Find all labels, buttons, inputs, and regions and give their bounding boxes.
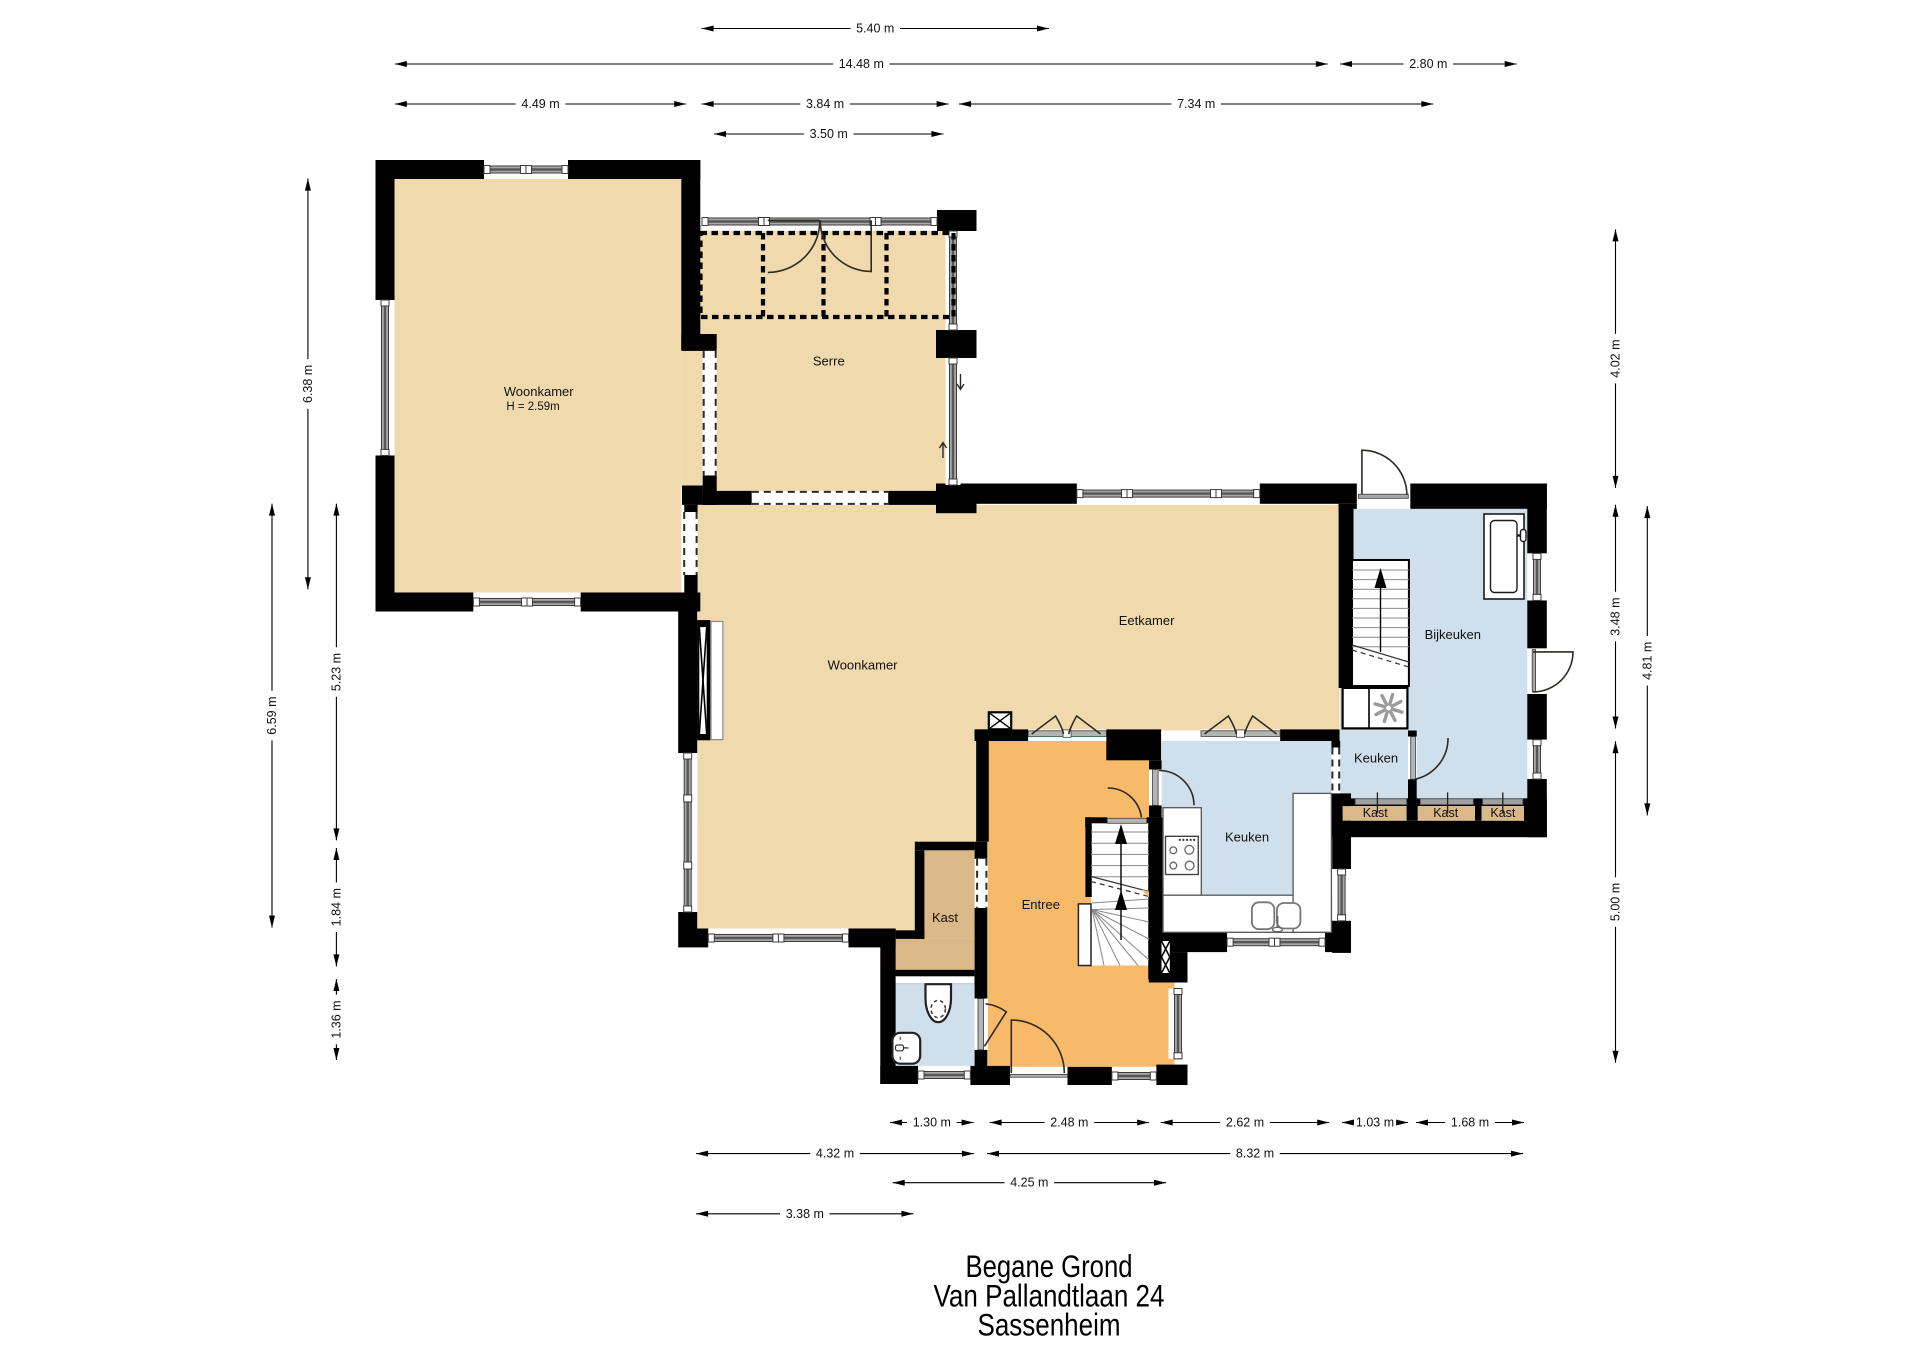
svg-text:4.02 m: 4.02 m <box>1609 339 1623 377</box>
svg-text:5.00 m: 5.00 m <box>1609 883 1623 921</box>
svg-text:6.38 m: 6.38 m <box>301 365 315 403</box>
svg-text:Keuken: Keuken <box>1354 751 1398 766</box>
svg-text:H = 2.59m: H = 2.59m <box>506 401 559 413</box>
svg-text:1.68 m: 1.68 m <box>1451 1116 1489 1130</box>
svg-text:3.48 m: 3.48 m <box>1609 597 1623 635</box>
svg-text:1.30 m: 1.30 m <box>913 1116 951 1130</box>
svg-text:6.59 m: 6.59 m <box>265 696 279 734</box>
svg-text:Sassenheim: Sassenheim <box>978 1306 1121 1342</box>
svg-text:Entree: Entree <box>1022 897 1060 912</box>
svg-text:Kast: Kast <box>932 910 958 925</box>
svg-text:1.36 m: 1.36 m <box>329 1000 343 1038</box>
svg-text:3.50 m: 3.50 m <box>810 127 848 141</box>
svg-text:4.32 m: 4.32 m <box>816 1147 854 1161</box>
svg-text:5.40 m: 5.40 m <box>856 22 894 36</box>
svg-text:Serre: Serre <box>813 353 845 368</box>
svg-text:5.23 m: 5.23 m <box>329 653 343 691</box>
svg-text:Kast: Kast <box>1363 806 1389 820</box>
svg-text:2.80 m: 2.80 m <box>1409 57 1447 71</box>
svg-text:Kast: Kast <box>1490 806 1516 820</box>
svg-text:Kast: Kast <box>1433 806 1459 820</box>
svg-text:3.38 m: 3.38 m <box>786 1207 824 1221</box>
svg-text:2.48 m: 2.48 m <box>1050 1116 1088 1130</box>
svg-text:14.48 m: 14.48 m <box>839 57 884 71</box>
svg-text:7.34 m: 7.34 m <box>1177 97 1215 111</box>
svg-text:1.84 m: 1.84 m <box>329 888 343 926</box>
svg-text:4.25 m: 4.25 m <box>1010 1176 1048 1190</box>
svg-text:Woonkamer: Woonkamer <box>828 658 899 673</box>
svg-text:3.84 m: 3.84 m <box>806 97 844 111</box>
svg-text:Bijkeuken: Bijkeuken <box>1425 627 1481 642</box>
svg-text:Woonkamer: Woonkamer <box>504 384 575 399</box>
svg-text:Keuken: Keuken <box>1225 830 1269 845</box>
svg-text:4.49 m: 4.49 m <box>521 97 559 111</box>
svg-text:4.81 m: 4.81 m <box>1640 642 1654 680</box>
svg-text:1.03 m: 1.03 m <box>1356 1116 1394 1130</box>
svg-text:Eetkamer: Eetkamer <box>1119 613 1175 628</box>
svg-text:2.62 m: 2.62 m <box>1226 1116 1264 1130</box>
svg-text:8.32 m: 8.32 m <box>1236 1147 1274 1161</box>
